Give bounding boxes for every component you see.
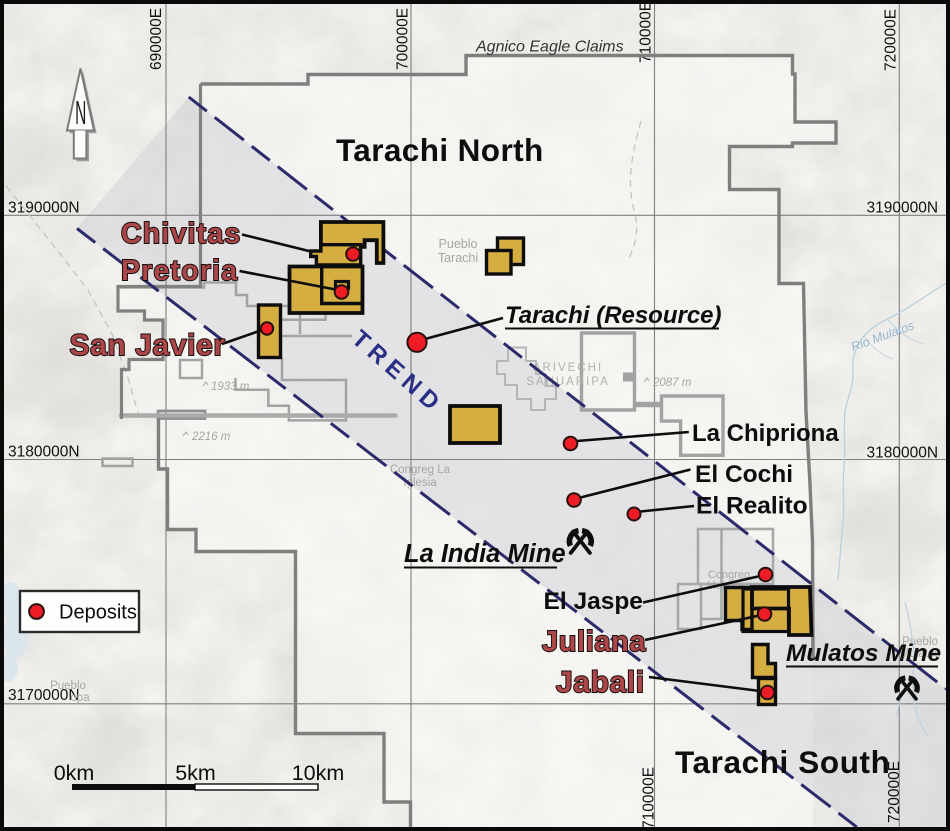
svg-text:SAHUARIPA: SAHUARIPA: [526, 376, 610, 388]
svg-text:Pueblo: Pueblo: [50, 680, 86, 692]
svg-text:San Javier: San Javier: [70, 329, 226, 362]
svg-text:Pueblo: Pueblo: [439, 237, 478, 251]
svg-text:Deposits: Deposits: [59, 602, 137, 624]
svg-text:Tarachi South: Tarachi South: [675, 744, 891, 780]
svg-text:1933 m: 1933 m: [211, 381, 250, 393]
svg-text:Pretoria: Pretoria: [121, 255, 238, 287]
svg-text:El Jaspe: El Jaspe: [544, 588, 643, 615]
svg-text:5km: 5km: [175, 761, 216, 785]
svg-text:El Realito: El Realito: [696, 493, 808, 520]
svg-text:Chivitas: Chivitas: [121, 218, 241, 250]
svg-text:10km: 10km: [292, 761, 345, 785]
svg-text:710000E: 710000E: [638, 1, 655, 63]
svg-text:720000E: 720000E: [883, 9, 900, 71]
svg-text:Agnico Eagle Claims: Agnico Eagle Claims: [475, 39, 624, 56]
svg-text:690000E: 690000E: [148, 8, 165, 70]
svg-text:La India Mine: La India Mine: [404, 540, 566, 568]
svg-text:3190000N: 3190000N: [8, 200, 80, 217]
svg-text:2087 m: 2087 m: [652, 377, 692, 389]
svg-text:Jabali: Jabali: [556, 666, 645, 699]
svg-text:Tarachi (Resource): Tarachi (Resource): [505, 302, 722, 329]
svg-text:0km: 0km: [54, 761, 95, 785]
svg-text:700000E: 700000E: [395, 8, 412, 70]
svg-text:La Chipriona: La Chipriona: [692, 420, 839, 447]
svg-text:Mulatos Mine: Mulatos Mine: [786, 640, 941, 667]
svg-text:ARIVECHI: ARIVECHI: [533, 362, 603, 374]
svg-text:N: N: [75, 96, 86, 132]
svg-text:3180000N: 3180000N: [867, 445, 939, 462]
svg-text:3190000N: 3190000N: [867, 200, 939, 217]
svg-text:El Cochi: El Cochi: [695, 461, 793, 488]
svg-text:Tarachi: Tarachi: [438, 251, 478, 265]
svg-text:2216 m: 2216 m: [191, 431, 231, 443]
svg-text:710000E: 710000E: [641, 767, 658, 829]
svg-text:3180000N: 3180000N: [8, 444, 80, 461]
svg-text:opa: opa: [70, 692, 90, 704]
svg-text:Juliana: Juliana: [542, 626, 646, 658]
svg-text:Tarachi North: Tarachi North: [336, 132, 544, 168]
